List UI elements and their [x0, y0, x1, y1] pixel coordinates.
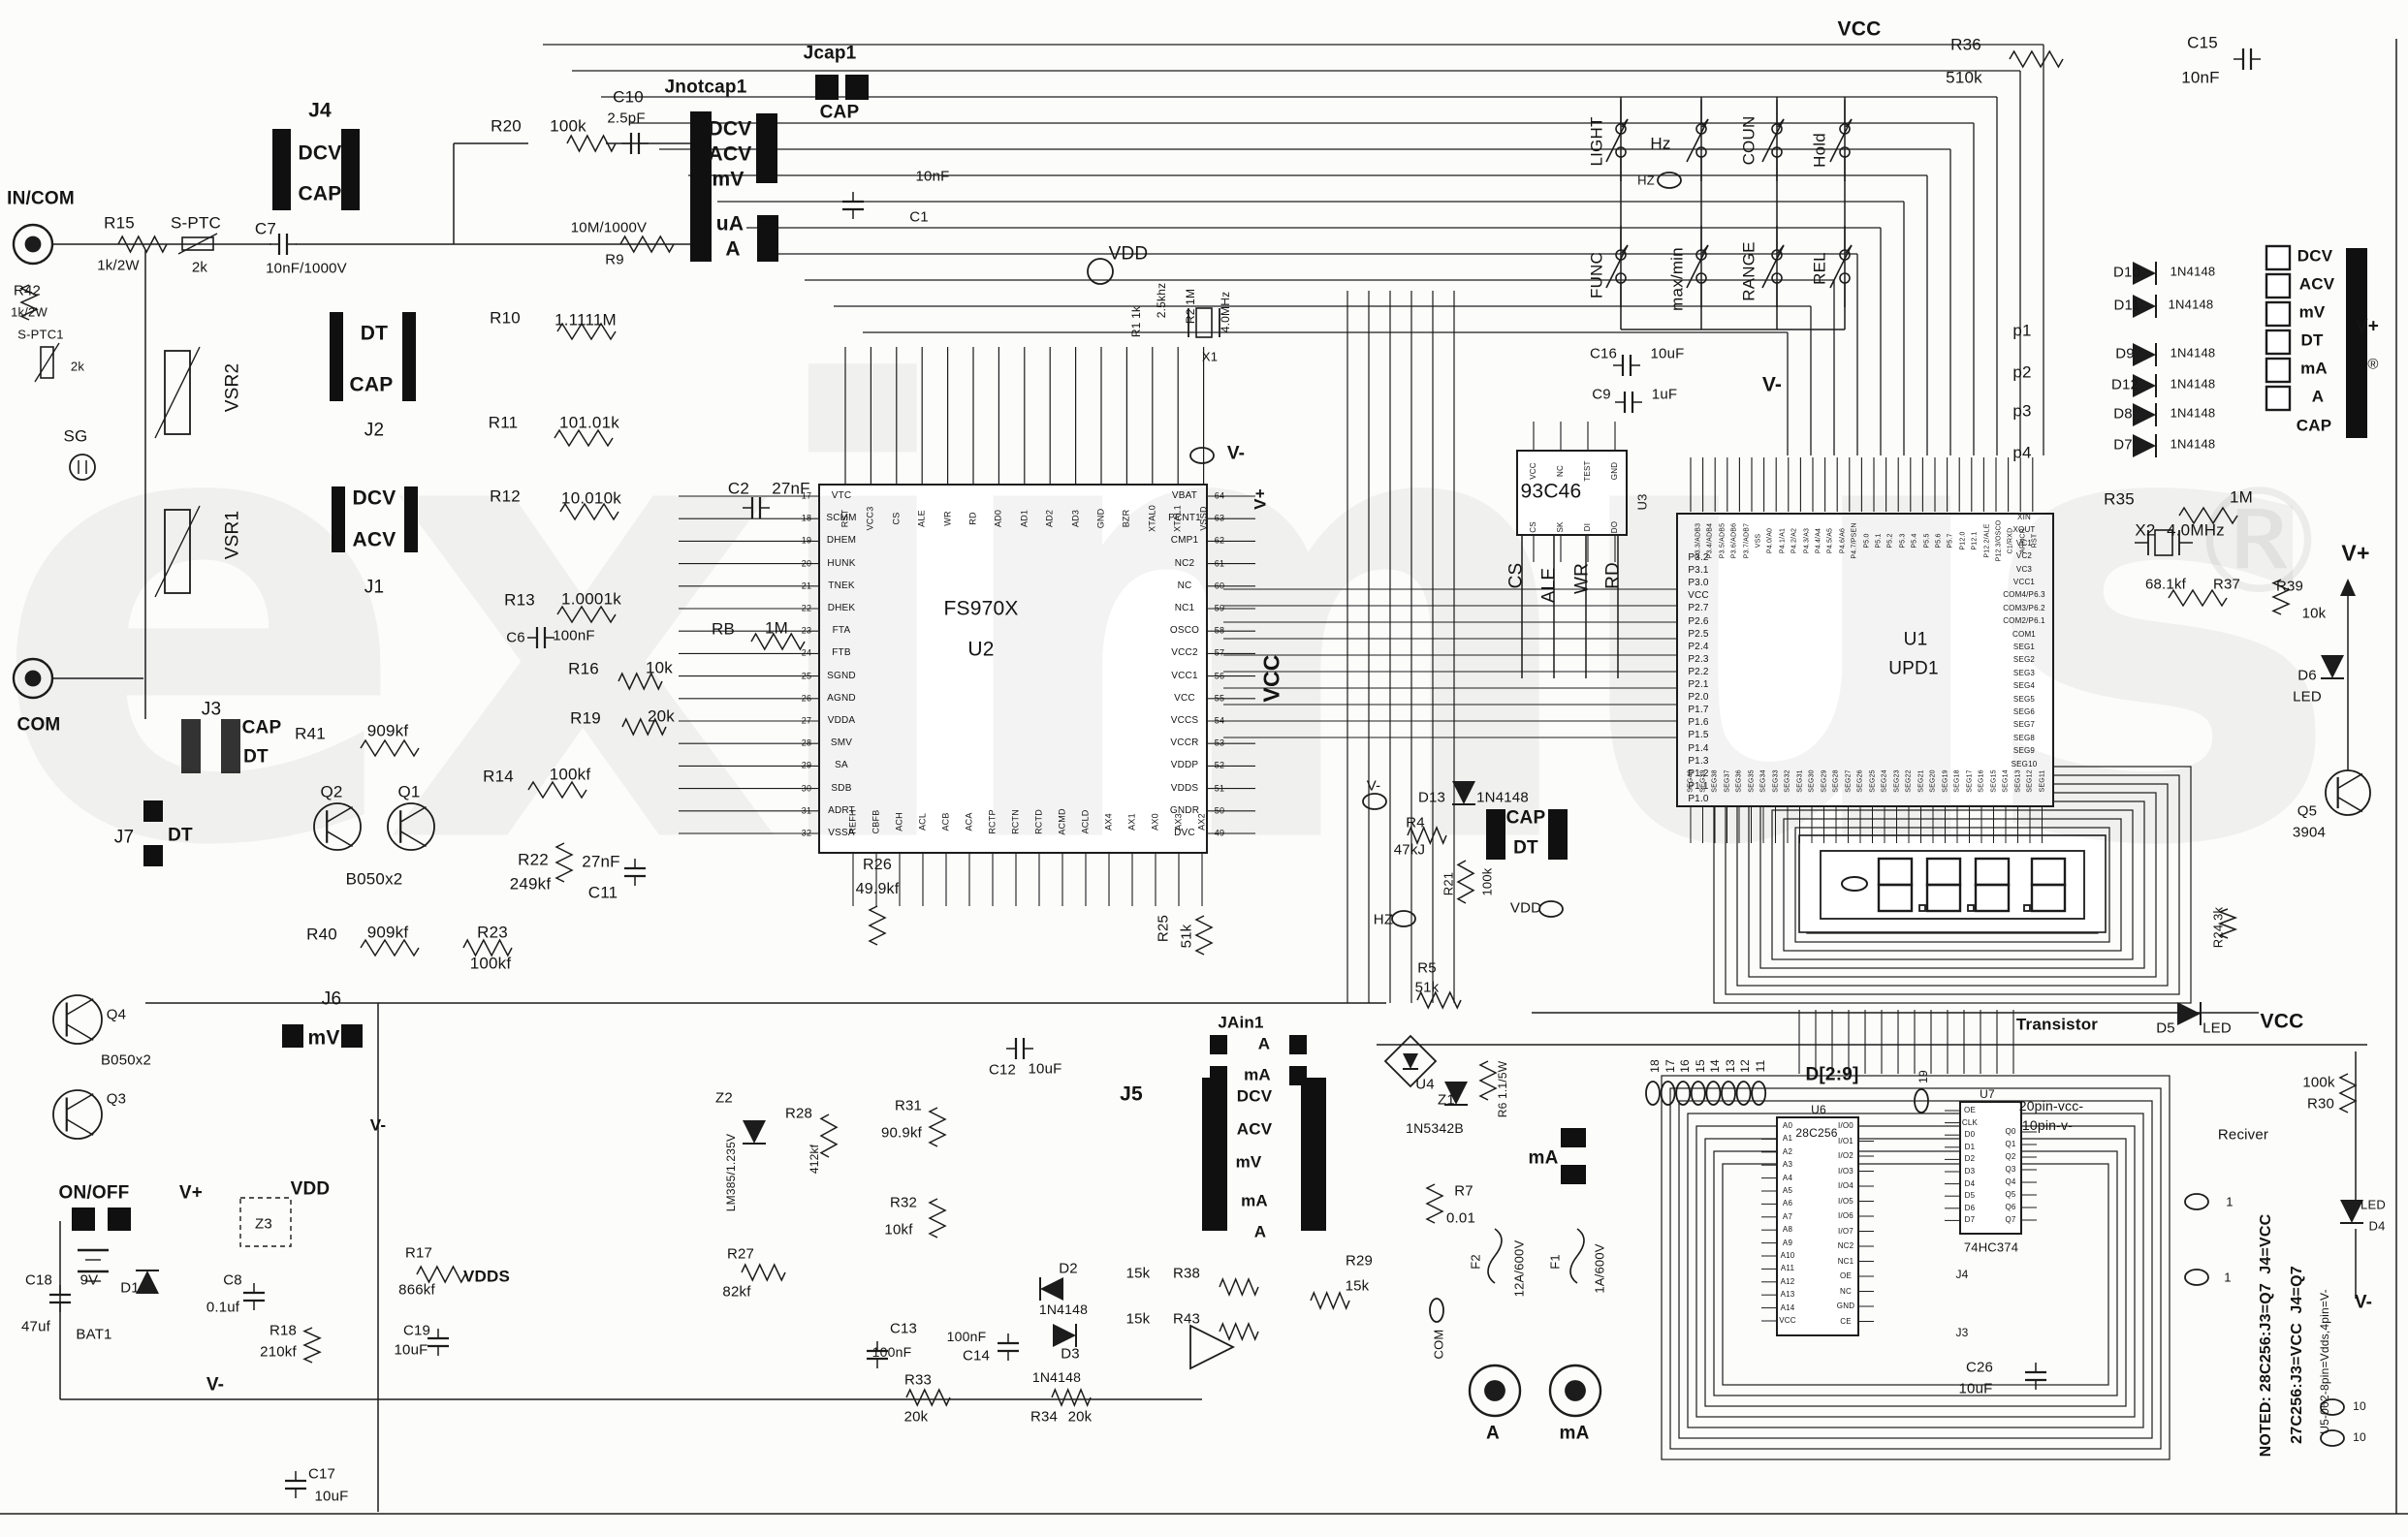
component-label: DT — [243, 748, 269, 767]
pin-label: P12.2/ALE — [1983, 523, 1990, 557]
pin-label: SEG20 — [1930, 769, 1937, 793]
jumper-pad — [756, 113, 777, 183]
component-label: mA — [1244, 1067, 1271, 1083]
component-label: R42 — [14, 284, 41, 298]
component-label: 412kf — [808, 1145, 820, 1174]
pin-label: P5.3 — [1899, 533, 1906, 548]
component-label: p2 — [2012, 364, 2031, 381]
pin-label: VSS — [1756, 534, 1762, 549]
jumper-pad — [332, 486, 345, 552]
pin-label: SEG33 — [1772, 769, 1779, 793]
pin-label: SEG12 — [2027, 769, 2034, 793]
component-label: 1.1111M — [554, 312, 617, 329]
component-label: 10nF — [916, 170, 950, 184]
component-label: U1 — [1904, 631, 1928, 649]
pin-label: SEG34 — [1760, 769, 1767, 793]
component-label: C17 — [308, 1467, 335, 1482]
component-label: D2 — [1059, 1262, 1078, 1276]
component-label: 1uF — [1652, 388, 1677, 402]
label: 62 — [1215, 537, 1224, 546]
component-label: R29 — [1346, 1254, 1373, 1269]
pin-label: ACL — [919, 813, 928, 831]
component-label: R40 — [306, 926, 337, 943]
component-label: 1N4148 — [2170, 266, 2216, 278]
component-label: J5 — [1120, 1084, 1143, 1105]
component-label: VDDS — [463, 1269, 510, 1285]
pin-label: SEG16 — [1979, 769, 1985, 793]
component-label: C18 — [25, 1273, 52, 1288]
component-label: 866kf — [398, 1283, 435, 1298]
component-label: Jcap1 — [804, 45, 857, 63]
component-label: D11 — [2113, 298, 2139, 313]
component-label: CAP — [820, 104, 860, 122]
component-label: V+ — [2341, 543, 2369, 565]
component-label: 10 — [2353, 1431, 2366, 1443]
component-label: 1M — [2230, 489, 2253, 506]
component-label: 1N5342B — [1406, 1121, 1464, 1135]
label: 20 — [802, 559, 811, 568]
component-label: 10 — [2353, 1400, 2366, 1412]
component-label: R2 1M — [1185, 289, 1196, 324]
jumper-pad — [282, 1024, 303, 1048]
pin-label: DI — [1584, 523, 1592, 531]
label: 25 — [802, 672, 811, 680]
component-label: R6 1.1/5W — [1497, 1061, 1508, 1118]
component-label: DCV — [2297, 248, 2333, 265]
component-label: R34 — [1030, 1410, 1058, 1425]
pin-label: A0 — [1783, 1122, 1792, 1130]
component-label: 9V — [80, 1273, 99, 1288]
pin-label: FTB — [832, 648, 851, 658]
component-label: U3 — [1636, 493, 1649, 510]
component-label: ® — [2367, 358, 2378, 372]
component-label: 27nF — [582, 854, 620, 870]
component-label: ON/OFF — [59, 1184, 130, 1203]
jumper-pad — [1561, 1128, 1586, 1147]
component-label: JAin1 — [1218, 1015, 1263, 1031]
component-label: 4.0MHz — [1220, 292, 1231, 333]
pin-label: SEG18 — [1954, 769, 1961, 793]
pin-label: AD0 — [995, 510, 1003, 527]
wire-layer — [0, 0, 2408, 1537]
component-label: C10 — [613, 89, 644, 106]
pin-label: VC3 — [2016, 566, 2032, 574]
label: 58 — [1215, 627, 1224, 636]
component-label: LED — [2293, 690, 2322, 705]
label: 30 — [802, 784, 811, 793]
pin-label: TNEK — [828, 581, 854, 591]
pin-label: VCC — [1688, 591, 1709, 601]
component-label: 210kf — [260, 1345, 297, 1360]
pin-label: P3.3/ADB3 — [1695, 523, 1702, 558]
pin-label: SEG4 — [2013, 682, 2035, 690]
component-label: Z2 — [715, 1091, 733, 1106]
pin-label: P2.7 — [1688, 604, 1708, 613]
component-label: 51k — [1415, 981, 1440, 995]
label: 23 — [802, 627, 811, 636]
label: 55 — [1215, 694, 1224, 703]
component-label: ACV — [1237, 1121, 1273, 1138]
pin-label: SEG2 — [2013, 656, 2035, 664]
pin-label: CS — [1530, 521, 1537, 533]
component-label: 20k — [1068, 1410, 1093, 1425]
pin-label: A13 — [1781, 1291, 1795, 1299]
pin-label: P1.0 — [1688, 795, 1708, 804]
component-label: C15 — [2187, 35, 2218, 51]
component-label: 16 — [1679, 1059, 1691, 1073]
component-label: 11 — [1755, 1060, 1766, 1073]
component-label: LED — [2202, 1021, 2232, 1036]
jumper-pad — [341, 129, 360, 210]
component-label: 1N4148 — [2170, 347, 2216, 360]
component-label: U5-062-8pin=Vdds,4pin=V- — [2319, 1289, 2330, 1434]
pin-label: A12 — [1781, 1278, 1795, 1286]
pin-label: SEG13 — [2014, 769, 2021, 793]
component-label: 1M — [765, 620, 788, 637]
component-label: RANGE — [1741, 241, 1758, 300]
component-label: Q1 — [397, 784, 420, 800]
component-label: HZ — [1374, 913, 1393, 927]
pin-label: P3.1 — [1688, 566, 1708, 576]
pin-label: SEG23 — [1893, 769, 1900, 793]
component-label: D12 — [2111, 378, 2139, 392]
component-label: R25 — [1156, 915, 1171, 942]
component-label: 1N4148 — [2170, 378, 2216, 391]
component-label: Hold — [1812, 133, 1828, 168]
component-label: VCC — [1838, 19, 1882, 40]
pin-label: SEG35 — [1748, 769, 1755, 793]
component-label: 68.1kf — [2145, 578, 2186, 592]
component-label: R14 — [483, 768, 514, 785]
component-label: R1 1k — [1130, 306, 1142, 337]
pin-label: A2 — [1783, 1148, 1792, 1156]
component-label: DT — [1513, 839, 1538, 858]
component-label: mA — [2300, 361, 2328, 377]
component-label: DCV — [353, 488, 396, 509]
component-label: J6 — [322, 990, 341, 1009]
pin-label: SEG29 — [1821, 769, 1827, 793]
pin-label: SEG38 — [1712, 769, 1719, 793]
pin-label: RCTP — [989, 809, 998, 833]
pin-label: A4 — [1783, 1175, 1792, 1182]
component-label: VSR1 — [224, 511, 242, 559]
component-label: J4 — [1955, 1269, 1968, 1280]
pin-label: P12.1 — [1972, 531, 1979, 549]
pin-label: P4.3/A3 — [1803, 528, 1810, 553]
component-label: IN/COM — [7, 190, 75, 208]
component-label: R30 — [2307, 1097, 2334, 1112]
component-label: 47uf — [21, 1320, 50, 1334]
pin-label: ACH — [896, 812, 904, 831]
component-label: C11 — [588, 885, 618, 901]
label: 64 — [1215, 492, 1224, 501]
pin-label: VCCS — [1171, 716, 1199, 726]
pin-label: SEG14 — [2003, 769, 2010, 793]
component-label: D1 — [120, 1281, 140, 1296]
pin-label: I/O6 — [1838, 1212, 1854, 1220]
component-label: D13 — [1418, 791, 1445, 805]
label: 19 — [802, 537, 811, 546]
component-label: COUN — [1741, 116, 1758, 166]
pin-label: COM4/P6.3 — [2003, 591, 2045, 599]
component-label: B050x2 — [346, 871, 403, 888]
pin-label: NC2 — [1838, 1242, 1854, 1250]
pin-label: VC2 — [2016, 552, 2032, 560]
component-label: U7 — [1980, 1088, 1995, 1100]
component-label: 10kf — [884, 1223, 912, 1238]
pin-label: Q5 — [2005, 1191, 2015, 1199]
pin-label: I/O3 — [1838, 1168, 1854, 1176]
component-label: D4 — [2368, 1220, 2385, 1233]
pin-label: ACLD — [1082, 810, 1091, 834]
component-label: ACV — [2299, 276, 2335, 293]
component-label: 1A/600V — [1594, 1243, 1606, 1293]
component-label: Q3 — [107, 1092, 126, 1107]
component-label: U2 — [967, 640, 994, 660]
pin-label: Q3 — [2005, 1166, 2015, 1174]
pin-label: GND — [1611, 462, 1619, 480]
pin-label: SEG28 — [1833, 769, 1840, 793]
component-label: S-PTC — [171, 215, 221, 232]
jumper-pad — [143, 845, 163, 866]
component-label: 20pin-vcc- — [2019, 1099, 2084, 1113]
component-label: D10 — [2113, 266, 2140, 280]
label: 27 — [802, 717, 811, 726]
component-label: 10nF/1000V — [266, 262, 347, 276]
component-label: V+ — [2356, 318, 2379, 336]
pin-label: SK — [1557, 521, 1565, 532]
jumper-pad — [1202, 1078, 1227, 1231]
label: 54 — [1215, 717, 1224, 726]
pin-label: P2.2 — [1688, 668, 1708, 677]
component-label: 100k — [550, 118, 586, 135]
pin-label: AD1 — [1020, 510, 1029, 527]
pin-label: BZR — [1123, 510, 1131, 528]
pin-label: GND — [1837, 1302, 1854, 1310]
pin-label: DO — [1611, 521, 1619, 533]
pin-label: OE — [1840, 1272, 1852, 1280]
component-label: mA — [1528, 1149, 1558, 1168]
component-label: mA — [1241, 1193, 1268, 1209]
component-label: 2.5khz — [1156, 283, 1167, 319]
pin-label: SEG36 — [1736, 769, 1743, 793]
pin-label: VCC3 — [867, 507, 875, 531]
component-label: X1 — [1202, 351, 1218, 363]
pin-label: AD2 — [1046, 510, 1055, 527]
component-label: U4 — [1415, 1078, 1435, 1092]
pin-label: P1.6 — [1688, 718, 1708, 728]
pin-label: A11 — [1781, 1265, 1794, 1272]
label: 22 — [802, 605, 811, 613]
pin-label: DHEK — [828, 604, 856, 613]
pin-label: WR — [943, 511, 952, 525]
pin-label: P1.4 — [1688, 744, 1708, 754]
pin-label: SEG37 — [1724, 769, 1730, 793]
component-label: 10k — [646, 660, 673, 676]
pin-label: AX3 — [1175, 813, 1184, 831]
component-label: 100nF — [872, 1345, 912, 1359]
pin-label: P4.6/A6 — [1839, 528, 1846, 553]
component-label: C13 — [890, 1322, 917, 1336]
component-label: BAT1 — [76, 1328, 111, 1342]
component-label: J1 — [364, 579, 384, 597]
jumper-pad — [1289, 1035, 1307, 1054]
component-label: D5 — [2156, 1021, 2175, 1036]
component-label: 1 — [2224, 1271, 2231, 1284]
component-label: C9 — [1592, 388, 1611, 402]
component-label: 100kf — [470, 956, 512, 972]
pin-label: NC1 — [1175, 604, 1195, 613]
component-label: 17 — [1664, 1059, 1676, 1073]
pin-label: SDB — [831, 784, 851, 794]
component-label: CS — [1507, 563, 1526, 589]
pin-label: ACB — [942, 812, 951, 831]
pin-label: A3 — [1783, 1161, 1792, 1169]
pin-label: COM1 — [2012, 631, 2036, 639]
component-label: Q5 — [2297, 804, 2317, 819]
component-label: VDD — [291, 1180, 331, 1199]
component-label: F2 — [1470, 1254, 1482, 1270]
component-label: 510k — [1946, 70, 1982, 86]
jumper-pad — [1486, 809, 1505, 860]
component-label: 10pin-v- — [2022, 1118, 2073, 1132]
component-label: VSR2 — [224, 363, 242, 412]
component-label: 1N4148 — [1476, 791, 1529, 805]
component-label: R39 — [2276, 580, 2303, 594]
component-label: R38 — [1173, 1267, 1200, 1281]
pin-label: P2.5 — [1688, 630, 1708, 640]
pin-label: SEG30 — [1809, 769, 1816, 793]
jumper-pad — [341, 1024, 363, 1048]
pin-label: XIN — [2017, 514, 2031, 521]
pin-label: I/O1 — [1838, 1138, 1854, 1145]
component-label: 10M/1000V — [571, 221, 648, 235]
component-label: HZ — [1637, 174, 1655, 187]
component-label: SG — [64, 428, 88, 445]
component-label: p1 — [2012, 323, 2031, 339]
component-label: R27 — [727, 1247, 754, 1262]
pin-label: SEG7 — [2013, 721, 2035, 729]
component-label: V- — [206, 1376, 224, 1395]
pin-label: VDDA — [828, 716, 856, 726]
component-label: 10uF — [1029, 1062, 1062, 1077]
component-label: C1 — [909, 210, 929, 225]
pin-label: VCC1 — [2013, 579, 2035, 586]
pin-label: NC — [1840, 1288, 1852, 1296]
component-label: 14 — [1709, 1059, 1721, 1073]
pin-label: P1.7 — [1688, 706, 1708, 715]
component-label: COM — [17, 716, 61, 735]
pin-label: SEG15 — [1990, 769, 1997, 793]
pin-label: VCC — [1174, 694, 1195, 704]
component-label: R13 — [504, 592, 535, 609]
component-label: 1N4148 — [2170, 438, 2216, 451]
label: 24 — [802, 649, 811, 658]
pin-label: D1 — [1965, 1144, 1976, 1151]
component-label: V- — [2355, 1294, 2372, 1312]
component-label: CAP — [2297, 418, 2332, 434]
label: 57 — [1215, 649, 1224, 658]
jumper-pad — [108, 1208, 131, 1231]
pin-label: P3.4/ADB4 — [1707, 523, 1714, 558]
component-label: mA — [1559, 1425, 1589, 1443]
pin-label: D5 — [1965, 1192, 1976, 1200]
pin-label: Q6 — [2005, 1204, 2015, 1211]
pin-label: I/O4 — [1838, 1182, 1854, 1190]
pin-label: SEG1 — [2013, 643, 2035, 651]
component-label: 10uF — [1651, 347, 1685, 361]
component-label: uA — [716, 214, 744, 235]
component-label: ACV — [709, 144, 752, 165]
pin-label: RST — [2032, 534, 2039, 549]
component-label: 90.9kf — [881, 1126, 922, 1141]
component-label: DT — [168, 827, 193, 845]
pin-label: SMV — [831, 738, 852, 748]
jumper-pad — [330, 312, 343, 401]
component-label: R21 — [1442, 872, 1455, 895]
jumper-pad — [1289, 1066, 1307, 1085]
component-label: 100kf — [550, 767, 591, 783]
component-label: R36 — [1950, 37, 1981, 53]
pin-label: CE — [1840, 1318, 1852, 1326]
pin-label: VDDS — [1171, 784, 1199, 794]
pin-label: SGND — [827, 672, 856, 681]
component-label: Jnotcap1 — [664, 78, 746, 97]
pin-label: A5 — [1783, 1187, 1792, 1195]
pin-label: SEG19 — [1942, 769, 1949, 793]
component-label: A — [725, 239, 740, 260]
component-label: 2k — [192, 261, 207, 275]
pin-label: P4.7/PSEN — [1852, 522, 1858, 558]
component-label: X2 — [2135, 522, 2155, 539]
component-label: 3904 — [2293, 826, 2326, 840]
pin-label: C1/RXD — [2008, 528, 2014, 554]
component-label: 0.01 — [1446, 1211, 1475, 1226]
component-label: J2 — [364, 422, 384, 440]
component-label: C8 — [223, 1273, 242, 1288]
component-label: V- — [370, 1117, 386, 1134]
component-label: 1.0001k — [561, 591, 621, 608]
component-label: DT — [2300, 332, 2323, 349]
pin-label: A6 — [1783, 1200, 1792, 1208]
jumper-pad — [1548, 809, 1568, 860]
component-label: p3 — [2012, 403, 2031, 420]
pin-label: P2.0 — [1688, 693, 1708, 703]
component-label: 0.1uf — [206, 1301, 239, 1315]
component-label: 74HC374 — [1964, 1241, 2018, 1254]
pin-label: SEG11 — [2039, 769, 2045, 792]
pin-label: Q4 — [2005, 1178, 2015, 1186]
jumper-pad — [1301, 1078, 1326, 1231]
component-label: 100nF — [553, 629, 595, 643]
pin-label: P3.5/ADB5 — [1719, 523, 1726, 558]
pin-label: SEG8 — [2013, 735, 2035, 742]
pin-label: AX2 — [1198, 813, 1207, 831]
component-label: R17 — [405, 1246, 432, 1261]
component-label: D3 — [1061, 1347, 1080, 1362]
pin-label: I/O5 — [1838, 1198, 1854, 1206]
component-label: p4 — [2012, 445, 2031, 461]
pin-label: D3 — [1965, 1168, 1976, 1176]
component-label: NOTED: 28C256:J3=Q7 J4=VCC — [2259, 1214, 2274, 1458]
component-label: 1N4148 — [1032, 1370, 1081, 1384]
component-label: 15k — [1126, 1312, 1151, 1327]
component-label: R12 — [490, 488, 521, 505]
pin-label: P5.7 — [1948, 533, 1954, 548]
pin-label: P4.0/A0 — [1767, 528, 1774, 553]
pin-label: I/O7 — [1838, 1228, 1854, 1236]
label: 49 — [1215, 830, 1224, 838]
